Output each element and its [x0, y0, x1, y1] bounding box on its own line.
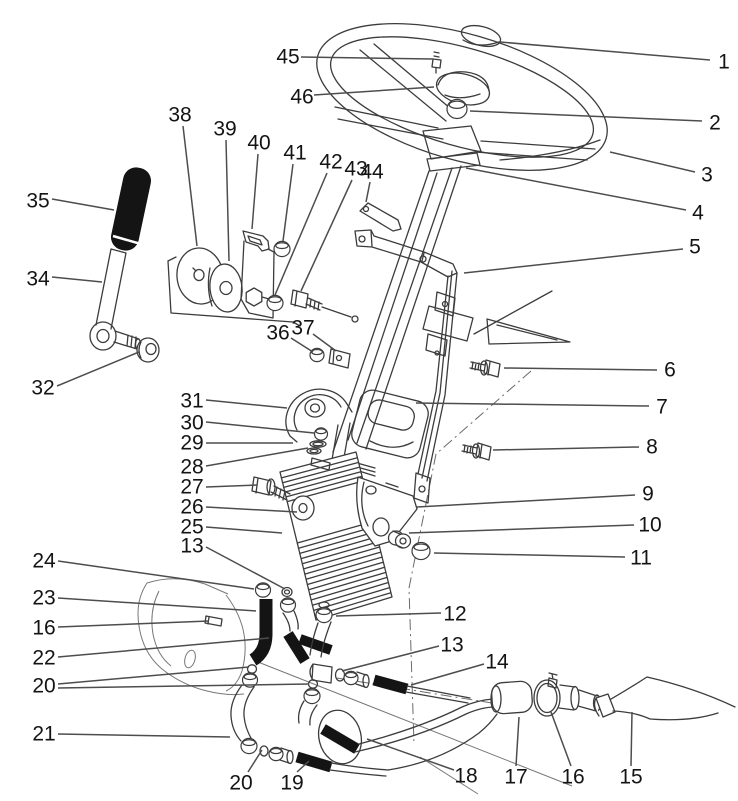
callout-20: 20: [229, 772, 252, 795]
elbow-fitting: [310, 664, 332, 683]
leader-line-8: [493, 447, 639, 450]
leader-line-32: [57, 352, 139, 386]
column-strap-bracket: [360, 203, 401, 231]
leader-line-9: [417, 495, 635, 507]
callout-42: 42: [319, 151, 342, 174]
leader-line-24: [58, 561, 254, 589]
hose-line: [406, 686, 470, 703]
leader-line-10: [409, 525, 634, 533]
callout-36: 36: [266, 322, 289, 345]
callout-19: 19: [280, 772, 303, 795]
parts-diagram: 1234567891011121314151617181920212022162…: [0, 0, 738, 801]
leader-line-28: [206, 448, 308, 466]
callout-7: 7: [656, 396, 668, 419]
callout-8: 8: [646, 436, 658, 459]
column-collar: [427, 153, 480, 171]
leader-line-2: [470, 111, 702, 121]
hose-tube: [299, 701, 317, 725]
leader-line-20: [58, 684, 309, 688]
callout-12: 12: [443, 603, 466, 626]
leader-line-16: [551, 712, 571, 766]
bracket-plate: [423, 306, 473, 341]
leader-line-22: [58, 638, 269, 657]
protective-sleeve: [491, 681, 533, 715]
leader-line-40: [252, 154, 258, 229]
dash-support-bracket: [355, 230, 570, 503]
leader-line-5: [464, 249, 683, 273]
leader-line-35: [52, 199, 114, 210]
leader-line-4: [466, 168, 686, 210]
callout-22: 22: [32, 647, 55, 670]
hex-nut: [281, 598, 296, 612]
wheel-rim-inner: [318, 12, 606, 181]
leader-line-25: [206, 527, 282, 533]
callout-4: 4: [692, 202, 704, 225]
leader-line-26: [206, 507, 297, 512]
callout-29: 29: [180, 432, 203, 455]
tilt-lever: [90, 165, 159, 362]
callout-2: 2: [709, 112, 721, 135]
hose-line: [388, 714, 497, 770]
diagram-canvas: 1234567891011121314151617181920212022162…: [0, 0, 738, 801]
callout-23: 23: [32, 587, 55, 610]
leader-line-12: [336, 613, 441, 616]
leader-line-6: [504, 368, 657, 370]
spacer-and-nut: [329, 349, 350, 368]
hex-nut: [304, 688, 320, 703]
hex-nut: [447, 100, 467, 119]
leader-line-42: [275, 173, 327, 295]
callout-27: 27: [180, 476, 203, 499]
wheel-spokes: [335, 44, 595, 160]
valve-washer: [292, 496, 314, 520]
hose-elbow-sleeve: [253, 599, 266, 660]
callout-11: 11: [630, 547, 652, 570]
leader-line-11: [434, 553, 625, 557]
leader-line-39: [226, 140, 229, 261]
callout-45: 45: [276, 46, 299, 69]
leader-line-27: [206, 485, 257, 487]
leader-line-34: [52, 277, 102, 282]
callout-30: 30: [180, 412, 203, 435]
steering-column: [325, 166, 461, 500]
leader-line-16: [58, 621, 209, 627]
callout-20: 20: [32, 675, 55, 698]
hex-nut: [274, 241, 290, 256]
leader-line-13: [342, 646, 439, 671]
hydraulic-lines: [205, 588, 735, 777]
valve-fitting-orings: [307, 441, 326, 454]
hose-line: [611, 677, 735, 720]
hex-nut: [310, 348, 324, 361]
callout-35: 35: [26, 190, 49, 213]
leader-line-7: [416, 403, 649, 406]
leader-line-20: [58, 667, 249, 684]
leader-line-13: [206, 547, 285, 589]
leader-line-3: [610, 152, 695, 172]
leader-line-31: [206, 400, 287, 408]
steel-tube: [231, 685, 254, 741]
callout-14: 14: [485, 651, 509, 674]
wheel-knob: [459, 22, 502, 50]
leader-line-17: [516, 717, 519, 766]
callout-1: 1: [718, 51, 730, 74]
callout-28: 28: [180, 456, 203, 479]
callout-31: 31: [180, 390, 203, 413]
hex-nut: [241, 738, 257, 753]
hose-line: [355, 699, 495, 752]
leader-line-43: [301, 180, 352, 291]
callout-38: 38: [168, 104, 191, 127]
bracket-edge: [418, 271, 457, 481]
callout-9: 9: [642, 483, 654, 506]
hose-sleeve: [297, 757, 331, 767]
spacer-washer: [389, 531, 411, 548]
callout-39: 39: [213, 118, 236, 141]
callout-15: 15: [619, 766, 642, 789]
o-ring: [248, 665, 257, 673]
callout-21: 21: [32, 723, 55, 746]
hex-nut: [344, 671, 358, 684]
callout-40: 40: [247, 132, 270, 155]
callout-24: 24: [32, 550, 56, 573]
leader-line-14: [411, 664, 484, 685]
hose-line: [330, 763, 388, 776]
callout-13: 13: [440, 634, 463, 657]
callout-6: 6: [664, 359, 676, 382]
lever-grip: [109, 165, 154, 253]
callout-17: 17: [504, 766, 527, 789]
leader-line-44: [366, 182, 370, 202]
hex-nut: [316, 607, 332, 622]
callout-3: 3: [701, 164, 713, 187]
callout-16: 16: [561, 766, 584, 789]
column-bearing-bell: [286, 389, 352, 454]
hose-clamp: [534, 673, 560, 716]
callout-18: 18: [454, 765, 477, 788]
callout-26: 26: [180, 496, 203, 519]
callout-10: 10: [638, 514, 661, 537]
callout-46: 46: [290, 86, 313, 109]
leader-line-38: [183, 126, 197, 246]
callout-16: 16: [32, 617, 55, 640]
callout-37: 37: [291, 317, 314, 340]
hose-sleeve: [300, 639, 331, 650]
callout-41: 41: [283, 142, 306, 165]
direction-arrow: [474, 291, 570, 344]
leader-line-45: [301, 57, 433, 59]
leader-line-23: [58, 598, 256, 611]
hose-end-cap: [595, 694, 615, 717]
hex-nut: [267, 295, 283, 310]
steering-control-valve: [252, 360, 500, 620]
hex-nut: [315, 428, 328, 440]
hose-sleeve: [374, 680, 407, 689]
hose-sleeve: [323, 729, 357, 749]
lever-bushing: [137, 338, 159, 362]
leader-line-1: [500, 42, 710, 60]
hex-nut: [256, 583, 271, 597]
leader-line-46: [314, 87, 434, 95]
hose-tube: [283, 611, 298, 631]
fastener-layer: [241, 100, 467, 761]
leader-line-21: [58, 734, 230, 737]
leader-line-30: [206, 422, 314, 433]
lever-arm: [96, 249, 126, 329]
leader-line-36: [291, 338, 313, 352]
tilt-friction-parts: [168, 231, 358, 368]
leader-line-15: [631, 712, 632, 766]
callout-25: 25: [180, 516, 203, 539]
callout-34: 34: [26, 268, 50, 291]
mount-bolt-upper: [470, 360, 500, 377]
callout-5: 5: [689, 236, 701, 259]
callout-32: 32: [31, 377, 54, 400]
hex-nut: [412, 542, 430, 559]
mount-bolt-lower: [462, 443, 491, 460]
callout-44: 44: [360, 161, 384, 184]
leader-line-41: [283, 164, 293, 241]
hex-nut: [269, 747, 283, 760]
cap-screw: [432, 52, 441, 73]
